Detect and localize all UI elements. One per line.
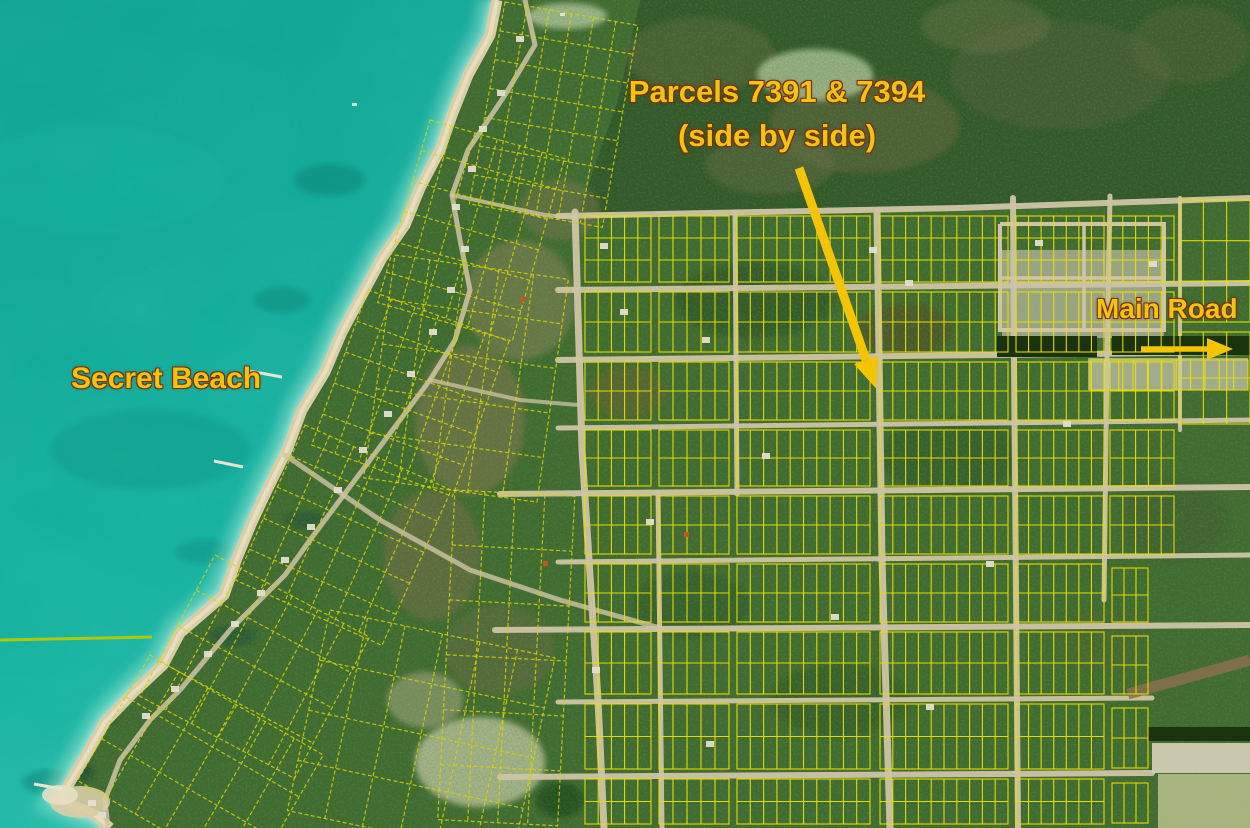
building	[204, 651, 212, 657]
building	[479, 126, 487, 132]
building	[384, 411, 392, 417]
orange-roof-building	[684, 532, 689, 537]
building	[231, 621, 239, 627]
building	[359, 447, 367, 453]
building	[1063, 421, 1071, 427]
building	[461, 246, 469, 252]
boat	[560, 13, 565, 16]
building	[447, 287, 455, 293]
building	[926, 704, 934, 710]
building	[706, 741, 714, 747]
building	[986, 561, 994, 567]
building	[334, 487, 342, 493]
satellite-imagery	[0, 0, 1250, 828]
building	[257, 590, 265, 596]
building	[88, 800, 96, 806]
building	[497, 90, 505, 96]
building	[142, 713, 150, 719]
building	[1149, 261, 1157, 267]
building	[831, 614, 839, 620]
orange-roof-building	[520, 297, 525, 302]
parcel-map: Parcels 7391 & 7394 (side by side) Secre…	[0, 0, 1250, 828]
building	[646, 519, 654, 525]
building	[516, 36, 524, 42]
boat	[352, 103, 357, 106]
building	[702, 337, 710, 343]
building	[171, 686, 179, 692]
building	[1035, 240, 1043, 246]
orange-roof-building	[543, 561, 548, 566]
building	[620, 309, 628, 315]
building	[281, 557, 289, 563]
building	[429, 329, 437, 335]
building	[869, 247, 877, 253]
building	[905, 280, 913, 286]
building	[468, 166, 476, 172]
building	[600, 243, 608, 249]
building	[452, 204, 460, 210]
building	[592, 667, 600, 673]
building	[98, 812, 106, 818]
building	[762, 453, 770, 459]
building	[407, 371, 415, 377]
building	[307, 524, 315, 530]
